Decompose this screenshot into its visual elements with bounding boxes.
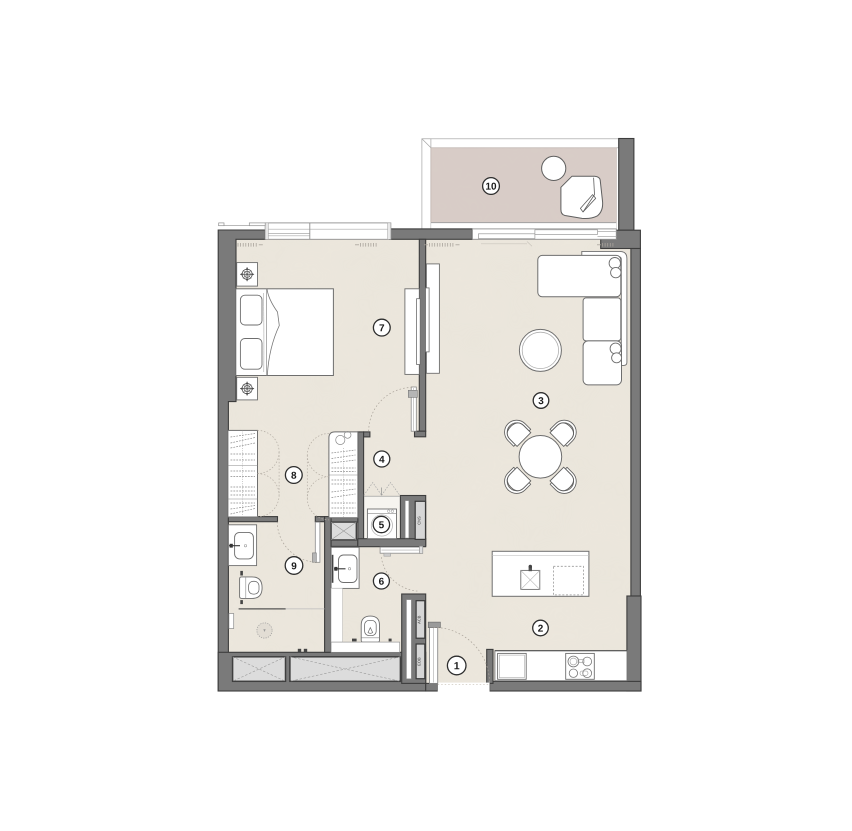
svg-text:ACB: ACB: [417, 615, 422, 624]
svg-text:CNS: CNS: [417, 516, 422, 525]
svg-text:EOB: EOB: [417, 657, 422, 666]
